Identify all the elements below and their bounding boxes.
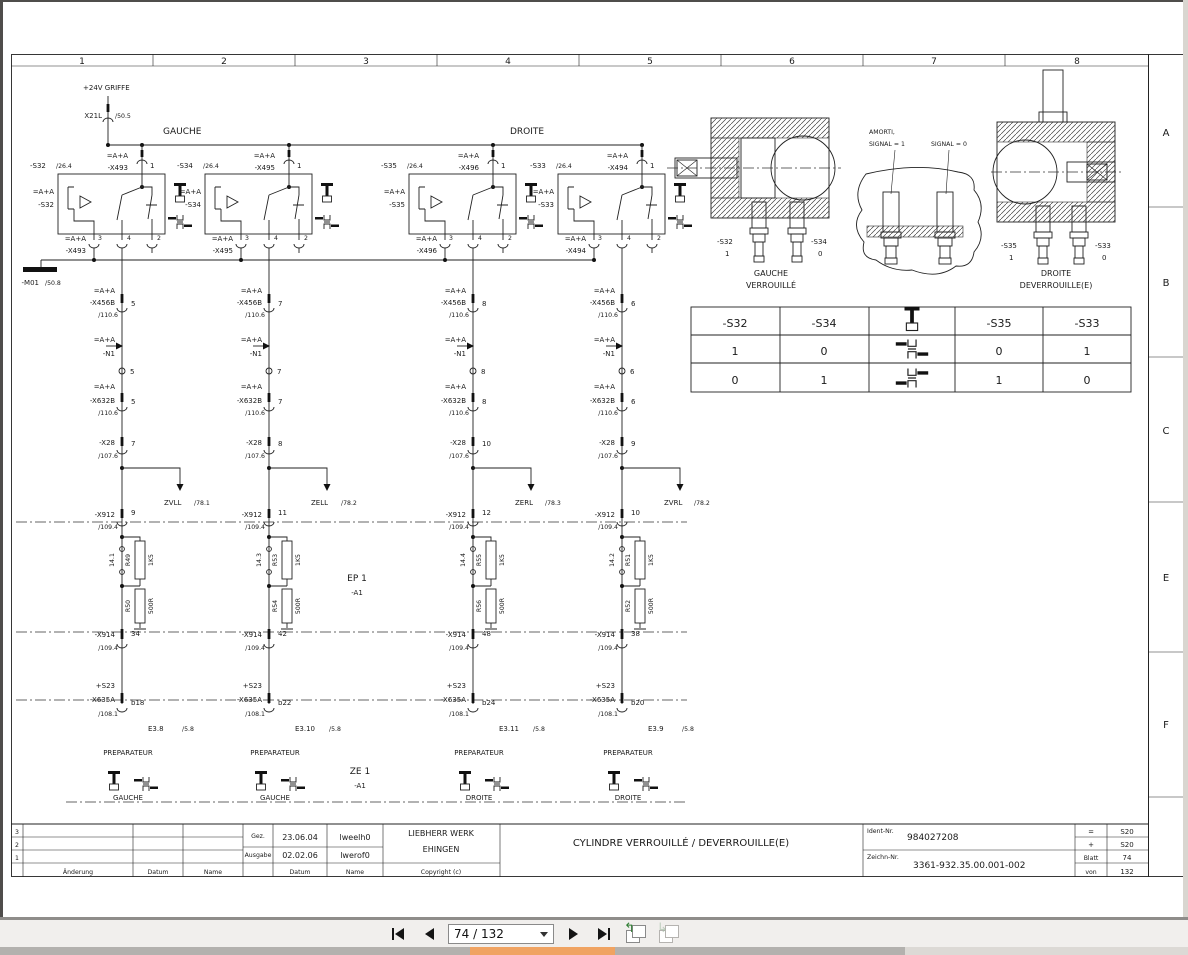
column-number: 7: [931, 57, 937, 67]
svg-text:-X912: -X912: [595, 511, 615, 519]
svg-text:-X494: -X494: [566, 247, 587, 255]
issued-by: lwerof0: [340, 851, 370, 860]
cylinder-caption: DROITE: [1041, 269, 1071, 278]
svg-text:7: 7: [278, 300, 282, 308]
svg-text:-X456B: -X456B: [237, 299, 262, 307]
svg-text:+S23: +S23: [447, 682, 466, 690]
sensor-state: 0: [818, 250, 822, 258]
svg-text:48: 48: [482, 630, 491, 638]
previous-view-button[interactable]: ↰: [623, 923, 649, 945]
svg-text:/110.6: /110.6: [245, 410, 265, 417]
svg-text:-X456B: -X456B: [90, 299, 115, 307]
resistor-name: R49: [125, 554, 132, 566]
valve-icon: [281, 777, 305, 791]
svg-text:-X496: -X496: [417, 247, 438, 255]
svg-text:=A+A: =A+A: [94, 287, 116, 295]
page-indicator: 74 / 132: [454, 927, 504, 941]
previous-page-button[interactable]: [417, 924, 441, 944]
preparateur-label: PREPARATEUR: [603, 749, 653, 757]
next-page-button[interactable]: [561, 924, 585, 944]
svg-text:2: 2: [15, 842, 19, 849]
svg-text:Ident-Nr.: Ident-Nr.: [867, 828, 894, 835]
switch-tag: -S34: [185, 201, 201, 209]
svg-text:Gez.: Gez.: [251, 833, 265, 840]
ident-number: 984027208: [907, 833, 959, 843]
drawing-title: CYLINDRE VERROUILLÉ / DEVERROUILLE(E): [573, 836, 789, 849]
circuit-column: 1 =A+A -X493 -S32 /26.4 =A+A -S32 =A+A -…: [30, 143, 210, 802]
connector-tag: -X494: [608, 164, 629, 172]
circuit-column: 1 =A+A -X495 -S34 /26.4 =A+A -S34 =A+A -…: [177, 143, 357, 802]
svg-text:/108.1: /108.1: [98, 711, 118, 718]
cylinder-section-right: -S35 1 -S33 0 DROITE DEVERROUILLE(E): [991, 70, 1121, 290]
sensor-state: 1: [1009, 254, 1013, 262]
svg-text:-X635A: -X635A: [237, 696, 262, 704]
column-number: 1: [79, 57, 85, 67]
last-page-button[interactable]: [592, 924, 616, 944]
plunger-icon: [255, 771, 267, 790]
drawn-date: 23.06.04: [282, 833, 318, 842]
svg-text:10: 10: [631, 509, 640, 517]
chain-lines: [16, 522, 687, 802]
schematic-drawing: 1 2 3 4 5 6 7 8 A B C E F +24V GRIFFE X2…: [11, 54, 1185, 878]
svg-text:Datum: Datum: [290, 869, 311, 876]
svg-text:7: 7: [277, 368, 281, 376]
column-number: 5: [647, 57, 653, 67]
pin-label: 1: [150, 162, 154, 170]
svg-text:42: 42: [278, 630, 287, 638]
svg-text:/110.6: /110.6: [98, 410, 118, 417]
svg-text:-X914: -X914: [595, 631, 616, 639]
e3-ref: E3.9: [648, 725, 664, 733]
svg-text:=A+A: =A+A: [445, 383, 467, 391]
svg-text:=A+A: =A+A: [594, 383, 616, 391]
svg-text:-X28: -X28: [599, 439, 615, 447]
svg-text:Änderung: Änderung: [63, 867, 93, 876]
svg-text:-X28: -X28: [450, 439, 466, 447]
svg-text:/26.4: /26.4: [56, 163, 72, 170]
svg-text:/78.1: /78.1: [194, 500, 210, 507]
table-cell: 0: [821, 345, 828, 358]
svg-text:3: 3: [598, 235, 602, 242]
svg-text:/107.6: /107.6: [98, 453, 118, 460]
svg-text:-X495: -X495: [213, 247, 233, 255]
svg-text:4: 4: [478, 235, 482, 242]
ground-tag: -M01: [22, 279, 39, 287]
svg-text:=A+A: =A+A: [254, 152, 276, 160]
svg-text:=A+A: =A+A: [241, 336, 263, 344]
svg-text:b18: b18: [131, 699, 144, 707]
ze1-tag: -A1: [354, 782, 366, 790]
svg-text:/109.4: /109.4: [598, 524, 618, 531]
resistor-name: R55: [476, 554, 483, 566]
svg-text:-N1: -N1: [103, 350, 115, 358]
svg-text:=A+A: =A+A: [565, 235, 587, 243]
circuit-column: 1 =A+A -X496 -S35 /26.4 =A+A -S35 =A+A -…: [381, 143, 561, 802]
sensor-state: 1: [725, 250, 729, 258]
svg-text:-X912: -X912: [95, 511, 115, 519]
svg-text:-X912: -X912: [242, 511, 262, 519]
connector-tag: -X495: [255, 164, 275, 172]
svg-text:2: 2: [657, 235, 661, 242]
preparateur-label: PREPARATEUR: [103, 749, 153, 757]
supply-label: +24V GRIFFE: [83, 84, 130, 92]
svg-text:Blatt: Blatt: [1084, 855, 1099, 862]
svg-text:Datum: Datum: [148, 869, 169, 876]
svg-text:/110.6: /110.6: [449, 312, 469, 319]
svg-text:/109.4: /109.4: [449, 524, 469, 531]
signal-name: ZVLL: [164, 499, 181, 507]
power-feed: +24V GRIFFE X21L /50.5 GAUCHE DROITE: [83, 84, 642, 147]
resistor-name: R52: [625, 600, 632, 612]
svg-text:/109.4: /109.4: [98, 645, 118, 652]
svg-text:/109.4: /109.4: [449, 645, 469, 652]
svg-text:-X635A: -X635A: [590, 696, 615, 704]
svg-text:-X456B: -X456B: [441, 299, 466, 307]
ze1-name: ZE 1: [350, 767, 370, 777]
pin-label: 1: [297, 162, 301, 170]
valve-icon: [315, 215, 339, 229]
sensor-tag: -S34: [811, 238, 827, 246]
company-name: EHINGEN: [423, 845, 460, 854]
taskbar-segment-orange: [470, 947, 615, 955]
svg-text:500R: 500R: [148, 597, 155, 614]
svg-text:/109.4: /109.4: [245, 645, 265, 652]
preparateur-label: PREPARATEUR: [250, 749, 300, 757]
svg-text:=A+A: =A+A: [241, 287, 263, 295]
svg-text:-X914: -X914: [95, 631, 116, 639]
svg-text:2: 2: [157, 235, 161, 242]
bus-label-gauche: GAUCHE: [163, 127, 202, 137]
pin-label: 1: [650, 162, 654, 170]
svg-text:=A+A: =A+A: [533, 188, 555, 196]
svg-text:b24: b24: [482, 699, 496, 707]
svg-text:7: 7: [278, 398, 282, 406]
column-number: 2: [221, 57, 227, 67]
table-cell: 1: [732, 345, 739, 358]
side-label: GAUCHE: [260, 794, 290, 802]
side-label: DROITE: [615, 794, 642, 802]
svg-text:=A+A: =A+A: [180, 188, 202, 196]
page-navigation: 74 / 132 ↰ ↳: [386, 923, 682, 945]
resistor-name: R53: [272, 554, 279, 566]
svg-text:1: 1: [15, 855, 19, 862]
svg-text:/110.6: /110.6: [449, 410, 469, 417]
testpoint-label: 14.4: [460, 553, 467, 567]
svg-text:/110.6: /110.6: [245, 312, 265, 319]
valve-icon: [896, 340, 928, 359]
page-number-combobox[interactable]: 74 / 132: [448, 924, 554, 944]
plunger-icon: [608, 771, 620, 790]
svg-text:/109.4: /109.4: [598, 645, 618, 652]
svg-text:9: 9: [131, 509, 135, 517]
sensor-ref: -S35: [381, 162, 397, 170]
column-number: 3: [363, 57, 369, 67]
svg-text:Name: Name: [346, 869, 364, 876]
ep1-tag: -A1: [351, 589, 363, 597]
svg-text:-X912: -X912: [446, 511, 466, 519]
svg-text:/26.4: /26.4: [556, 163, 572, 170]
table-cell: 0: [732, 374, 739, 387]
svg-text:b22: b22: [278, 699, 291, 707]
svg-text:34: 34: [131, 630, 140, 638]
row-letter: A: [1163, 128, 1170, 139]
svg-text:12: 12: [482, 509, 491, 517]
svg-text:8: 8: [482, 300, 486, 308]
svg-text:-X914: -X914: [446, 631, 467, 639]
valve-icon: [485, 777, 509, 791]
sensor-tag: -S33: [1095, 242, 1111, 250]
svg-text:-X28: -X28: [246, 439, 262, 447]
svg-text:2: 2: [304, 235, 308, 242]
connector-tag: -X493: [108, 164, 128, 172]
svg-text:/78.2: /78.2: [694, 500, 710, 507]
svg-text:3: 3: [15, 829, 19, 836]
valve-icon: [134, 777, 158, 791]
signal-name: ZVRL: [664, 499, 682, 507]
svg-text:9: 9: [631, 440, 635, 448]
svg-text:S20: S20: [1120, 828, 1133, 836]
svg-text:8: 8: [482, 398, 486, 406]
cylinder-section-left: -S32 1 -S34 0 GAUCHE VERROUILLÉ: [667, 118, 841, 290]
svg-text:/5.8: /5.8: [682, 726, 694, 733]
pdf-toolbar: 74 / 132 ↰ ↳: [0, 920, 1188, 947]
svg-text:/50.5: /50.5: [115, 113, 131, 120]
sensor-state: 0: [1102, 254, 1106, 262]
resistor-name: R51: [625, 554, 632, 566]
svg-text:=A+A: =A+A: [445, 336, 467, 344]
chevron-down-icon: [540, 932, 548, 937]
valve-icon: [896, 369, 928, 388]
svg-text:1K5: 1K5: [148, 554, 155, 566]
column-number: 6: [789, 57, 795, 67]
taskbar-strip: [0, 947, 1188, 955]
svg-text:/109.4: /109.4: [245, 524, 265, 531]
svg-text:1K5: 1K5: [499, 554, 506, 566]
svg-text:=A+A: =A+A: [107, 152, 129, 160]
svg-text:10: 10: [482, 440, 491, 448]
resistor-name: R50: [125, 600, 132, 612]
svg-text:/5.8: /5.8: [329, 726, 341, 733]
back-arrow-icon: ↰: [624, 920, 635, 936]
svg-text:-X632B: -X632B: [90, 397, 115, 405]
bus-label-droite: DROITE: [510, 127, 544, 137]
next-view-button[interactable]: ↳: [656, 923, 682, 945]
cylinder-caption: DEVERROUILLE(E): [1020, 281, 1093, 290]
svg-text:6: 6: [630, 368, 635, 376]
valve-icon: [168, 215, 192, 229]
valve-icon: [519, 215, 543, 229]
svg-text:5: 5: [130, 368, 134, 376]
svg-text:=A+A: =A+A: [594, 287, 616, 295]
cylinder-caption: VERROUILLÉ: [746, 279, 796, 290]
table-cell: 0: [996, 345, 1003, 358]
svg-text:S20: S20: [1120, 841, 1133, 849]
terminal-tag: X21L: [84, 112, 102, 120]
plunger-icon: [321, 183, 333, 202]
svg-text:+: +: [1088, 841, 1094, 849]
connector-tag: -X496: [459, 164, 480, 172]
table-header: -S33: [1075, 317, 1100, 330]
svg-text:3: 3: [449, 235, 453, 242]
valve-icon: [634, 777, 658, 791]
svg-text:38: 38: [631, 630, 640, 638]
resistor-name: R54: [272, 600, 279, 612]
drawing-frame: 1 2 3 4 5 6 7 8 A B C E F: [11, 54, 1185, 877]
svg-text:=A+A: =A+A: [212, 235, 234, 243]
table-header: -S34: [812, 317, 837, 330]
svg-text:5: 5: [131, 300, 135, 308]
preparateur-label: PREPARATEUR: [454, 749, 504, 757]
company-name: LIEBHERR WERK: [408, 829, 475, 838]
side-label: GAUCHE: [113, 794, 143, 802]
svg-text:3: 3: [245, 235, 249, 242]
switch-tag: -S32: [38, 201, 54, 209]
svg-text:-N1: -N1: [454, 350, 466, 358]
svg-text:b20: b20: [631, 699, 644, 707]
svg-text:=: =: [1088, 828, 1094, 836]
column-number: 8: [1074, 57, 1080, 67]
svg-text:-X635A: -X635A: [441, 696, 466, 704]
row-letter: C: [1163, 426, 1170, 437]
drawn-by: lweelh0: [340, 833, 371, 842]
svg-text:/26.4: /26.4: [203, 163, 219, 170]
ep1-name: EP 1: [347, 574, 367, 584]
svg-text:1K5: 1K5: [648, 554, 655, 566]
table-cell: 1: [1084, 345, 1091, 358]
svg-text:/110.6: /110.6: [598, 410, 618, 417]
svg-text:+S23: +S23: [96, 682, 115, 690]
drawing-number: 3361-932.35.00.001-002: [913, 861, 1025, 871]
svg-text:SIGNAL = 0: SIGNAL = 0: [931, 141, 967, 148]
svg-text:/107.6: /107.6: [449, 453, 469, 460]
svg-text:/78.3: /78.3: [545, 500, 561, 507]
svg-text:=A+A: =A+A: [594, 336, 616, 344]
svg-text:/110.6: /110.6: [598, 312, 618, 319]
svg-text:2: 2: [508, 235, 512, 242]
scroll-track[interactable]: [1183, 0, 1188, 917]
svg-text:=A+A: =A+A: [445, 287, 467, 295]
sensor-tag: -S32: [717, 238, 733, 246]
testpoint-label: 14.2: [609, 553, 616, 567]
circuit-column: 1 =A+A -X494 -S33 /26.4 =A+A -S33 =A+A -…: [530, 143, 710, 802]
svg-text:=A+A: =A+A: [94, 336, 116, 344]
svg-text:von: von: [1085, 869, 1096, 876]
table-header: -S32: [723, 317, 748, 330]
svg-text:/26.4: /26.4: [407, 163, 423, 170]
truth-table: -S32 -S34 -S35 -S33 1 0 0 1 0 1 1 0: [691, 307, 1131, 392]
svg-text:Name: Name: [204, 869, 222, 876]
forward-arrow-icon: ↳: [657, 920, 668, 936]
row-letter: F: [1163, 720, 1169, 731]
pin-label: 1: [501, 162, 505, 170]
svg-text:500R: 500R: [499, 597, 506, 614]
svg-text:=A+A: =A+A: [384, 188, 406, 196]
sensor-ref: -S33: [530, 162, 546, 170]
svg-text:Ausgabe: Ausgabe: [245, 852, 272, 859]
sensor-tag: -S35: [1001, 242, 1017, 250]
ground-bus: -M01 /50.8: [22, 260, 594, 287]
sheet-total: 132: [1120, 868, 1133, 876]
svg-text:4: 4: [127, 235, 131, 242]
svg-text:500R: 500R: [648, 597, 655, 614]
svg-text:6: 6: [631, 398, 636, 406]
side-label: DROITE: [466, 794, 493, 802]
sheet-number: 74: [1123, 854, 1132, 862]
valve-icon: [668, 215, 692, 229]
svg-text:/78.2: /78.2: [341, 500, 357, 507]
svg-text:6: 6: [631, 300, 636, 308]
svg-text:-X632B: -X632B: [441, 397, 466, 405]
svg-text:Copyright (c): Copyright (c): [421, 869, 461, 876]
svg-text:-N1: -N1: [603, 350, 615, 358]
svg-text:-X632B: -X632B: [590, 397, 615, 405]
table-header: -S35: [987, 317, 1012, 330]
svg-text:-X28: -X28: [99, 439, 115, 447]
svg-text:-N1: -N1: [250, 350, 262, 358]
plunger-icon: [459, 771, 471, 790]
taskbar-segment-light: [905, 947, 1188, 955]
svg-text:-X456B: -X456B: [590, 299, 615, 307]
svg-text:+S23: +S23: [243, 682, 262, 690]
svg-text:/108.1: /108.1: [598, 711, 618, 718]
svg-text:8: 8: [481, 368, 485, 376]
svg-text:=A+A: =A+A: [416, 235, 438, 243]
svg-text:AMORTI,: AMORTI,: [869, 129, 895, 136]
svg-text:-X493: -X493: [66, 247, 86, 255]
sensor-ref: -S32: [30, 162, 46, 170]
svg-text:=A+A: =A+A: [458, 152, 480, 160]
e3-ref: E3.8: [148, 725, 164, 733]
svg-text:/107.6: /107.6: [598, 453, 618, 460]
sensor-detail-middle: AMORTI, SIGNAL = 1 SIGNAL = 0: [856, 129, 981, 274]
svg-text:-X632B: -X632B: [237, 397, 262, 405]
svg-text:=A+A: =A+A: [65, 235, 87, 243]
svg-text:1K5: 1K5: [295, 554, 302, 566]
plunger-icon: [108, 771, 120, 790]
signal-name: ZERL: [515, 499, 533, 507]
first-page-button[interactable]: [386, 924, 410, 944]
svg-text:11: 11: [278, 509, 287, 517]
svg-text:4: 4: [627, 235, 631, 242]
table-cell: 1: [821, 374, 828, 387]
cylinder-caption: GAUCHE: [754, 269, 788, 278]
svg-text:4: 4: [274, 235, 278, 242]
svg-text:=A+A: =A+A: [33, 188, 55, 196]
svg-text:7: 7: [131, 440, 135, 448]
svg-text:=A+A: =A+A: [607, 152, 629, 160]
svg-text:-X914: -X914: [242, 631, 263, 639]
svg-text:5: 5: [131, 398, 135, 406]
column-number: 4: [505, 57, 511, 67]
issue-date: 02.02.06: [282, 851, 318, 860]
svg-text:/110.6: /110.6: [98, 312, 118, 319]
svg-text:Zeichn-Nr.: Zeichn-Nr.: [867, 854, 899, 861]
title-block: 3 2 1 Änderung Datum Name Gez. 23.06.04 …: [11, 824, 1148, 877]
signal-name: ZELL: [311, 499, 328, 507]
table-cell: 1: [996, 374, 1003, 387]
svg-text:/108.1: /108.1: [245, 711, 265, 718]
sensor-ref: -S34: [177, 162, 193, 170]
svg-text:/108.1: /108.1: [449, 711, 469, 718]
switch-tag: -S35: [389, 201, 405, 209]
svg-text:500R: 500R: [295, 597, 302, 614]
table-cell: 0: [1084, 374, 1091, 387]
document-page: 1 2 3 4 5 6 7 8 A B C E F +24V GRIFFE X2…: [0, 0, 1188, 917]
switch-tag: -S33: [538, 201, 554, 209]
svg-text:-X635A: -X635A: [90, 696, 115, 704]
svg-text:SIGNAL = 1: SIGNAL = 1: [869, 141, 905, 148]
row-letter: B: [1163, 278, 1170, 289]
